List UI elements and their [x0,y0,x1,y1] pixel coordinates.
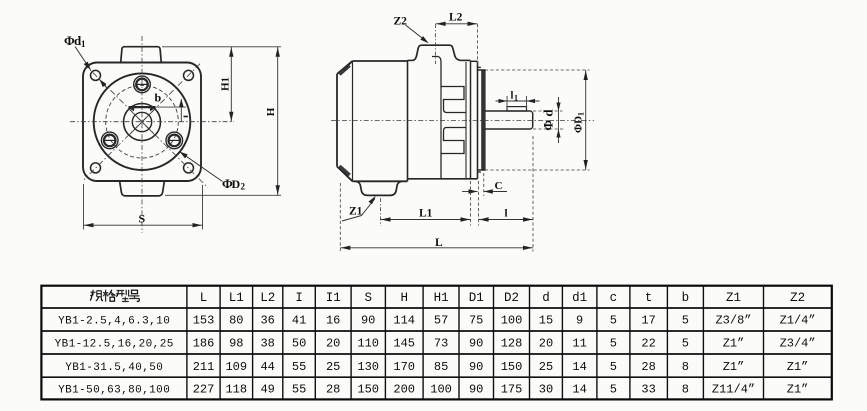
svg-text:170: 170 [393,360,415,374]
svg-text:L2: L2 [449,12,463,24]
svg-text:22: 22 [641,337,655,351]
svg-text:50: 50 [292,337,306,351]
svg-text:Z2: Z2 [790,291,805,305]
svg-text:110: 110 [357,337,379,351]
svg-text:1: 1 [81,39,86,49]
svg-text:150: 150 [357,383,379,397]
svg-text:ΦD1: ΦD1 [573,112,586,133]
svg-text:15: 15 [539,314,553,328]
svg-text:Z2: Z2 [394,16,408,28]
svg-text:t: t [645,291,653,305]
svg-text:H1: H1 [434,291,449,305]
svg-text:109: 109 [225,360,247,374]
svg-text:YB1-12.5,16,20,25: YB1-12.5,16,20,25 [55,339,174,351]
svg-text:227: 227 [193,383,215,397]
svg-text:S: S [364,291,372,305]
svg-text:20: 20 [326,337,340,351]
svg-text:H: H [400,291,408,305]
svg-text:38: 38 [260,337,274,351]
svg-text:5: 5 [610,337,617,351]
svg-text:80: 80 [229,314,243,328]
svg-text:Z1/4”: Z1/4” [780,314,816,328]
svg-text:150: 150 [501,360,523,374]
svg-text:25: 25 [539,360,553,374]
svg-text:S: S [139,212,146,226]
svg-text:d: d [542,291,550,305]
svg-text:D1: D1 [469,291,484,305]
svg-text:85: 85 [434,360,448,374]
svg-text:55: 55 [292,383,306,397]
svg-text:25: 25 [326,360,340,374]
svg-text:20: 20 [539,337,553,351]
svg-text:I: I [295,291,303,305]
svg-text:28: 28 [641,360,655,374]
svg-text:L1: L1 [419,208,433,220]
svg-text:5: 5 [610,314,617,328]
svg-text:90: 90 [361,314,375,328]
svg-text:5: 5 [682,337,689,351]
svg-text:118: 118 [225,383,247,397]
svg-text:145: 145 [393,337,415,351]
svg-text:200: 200 [393,383,415,397]
svg-text:2: 2 [241,182,246,192]
svg-text:114: 114 [393,314,415,328]
svg-text:73: 73 [434,337,448,351]
svg-text:90: 90 [469,383,483,397]
svg-text:Z1”: Z1” [787,383,809,397]
svg-text:16: 16 [326,314,340,328]
svg-text:9: 9 [576,314,583,328]
svg-text:YB1-2.5,4,6.3,10: YB1-2.5,4,6.3,10 [58,316,170,328]
svg-text:100: 100 [501,314,523,328]
svg-text:41: 41 [292,314,306,328]
svg-text:Z1”: Z1” [723,360,745,374]
svg-text:14: 14 [572,383,586,397]
svg-text:d1: d1 [572,291,587,305]
svg-text:Z11/4”: Z11/4” [712,383,755,397]
svg-text:D: D [232,177,241,191]
svg-text:Φ d: Φ d [541,109,556,131]
svg-text:b: b [682,291,690,305]
svg-text:33: 33 [641,383,655,397]
svg-text:55: 55 [292,360,306,374]
svg-text:30: 30 [539,383,553,397]
svg-text:153: 153 [193,314,215,328]
svg-text:1: 1 [514,94,518,103]
svg-text:17: 17 [641,314,655,328]
svg-text:L: L [435,237,443,249]
svg-text:11: 11 [572,337,586,351]
svg-text:28: 28 [326,383,340,397]
svg-text:75: 75 [469,314,483,328]
svg-text:5: 5 [610,383,617,397]
svg-text:211: 211 [193,360,215,374]
svg-text:C: C [495,180,503,192]
svg-text:5: 5 [610,360,617,374]
svg-text:YB1-31.5,40,50: YB1-31.5,40,50 [65,362,163,374]
svg-text:b: b [155,91,162,105]
svg-text:D2: D2 [504,291,519,305]
svg-text:L: L [200,291,208,305]
svg-text:Z1”: Z1” [723,337,745,351]
svg-text:L1: L1 [229,291,244,305]
svg-text:98: 98 [229,337,243,351]
svg-text:186: 186 [193,337,215,351]
svg-text:8: 8 [682,383,689,397]
svg-text:44: 44 [260,360,274,374]
svg-text:Z1: Z1 [726,291,741,305]
svg-text:100: 100 [430,383,452,397]
svg-text:Z3/4”: Z3/4” [780,337,816,351]
svg-text:Z3/8”: Z3/8” [715,314,751,328]
svg-text:130: 130 [357,360,379,374]
svg-text:8: 8 [682,360,689,374]
svg-text:l: l [505,208,508,220]
svg-text:5: 5 [682,314,689,328]
svg-text:57: 57 [434,314,448,328]
svg-text:H1: H1 [220,77,232,91]
svg-text:L2: L2 [260,291,275,305]
svg-text:36: 36 [260,314,274,328]
svg-text:I1: I1 [326,291,341,305]
svg-text:128: 128 [501,337,523,351]
svg-text:c: c [610,291,618,305]
svg-text:49: 49 [260,383,274,397]
svg-text:90: 90 [469,360,483,374]
svg-text:Z1”: Z1” [787,360,809,374]
svg-text:H: H [265,107,277,116]
svg-text:90: 90 [469,337,483,351]
svg-text:YB1-50,63,80,100: YB1-50,63,80,100 [58,385,170,397]
svg-text:14: 14 [572,360,586,374]
svg-text:175: 175 [501,383,523,397]
